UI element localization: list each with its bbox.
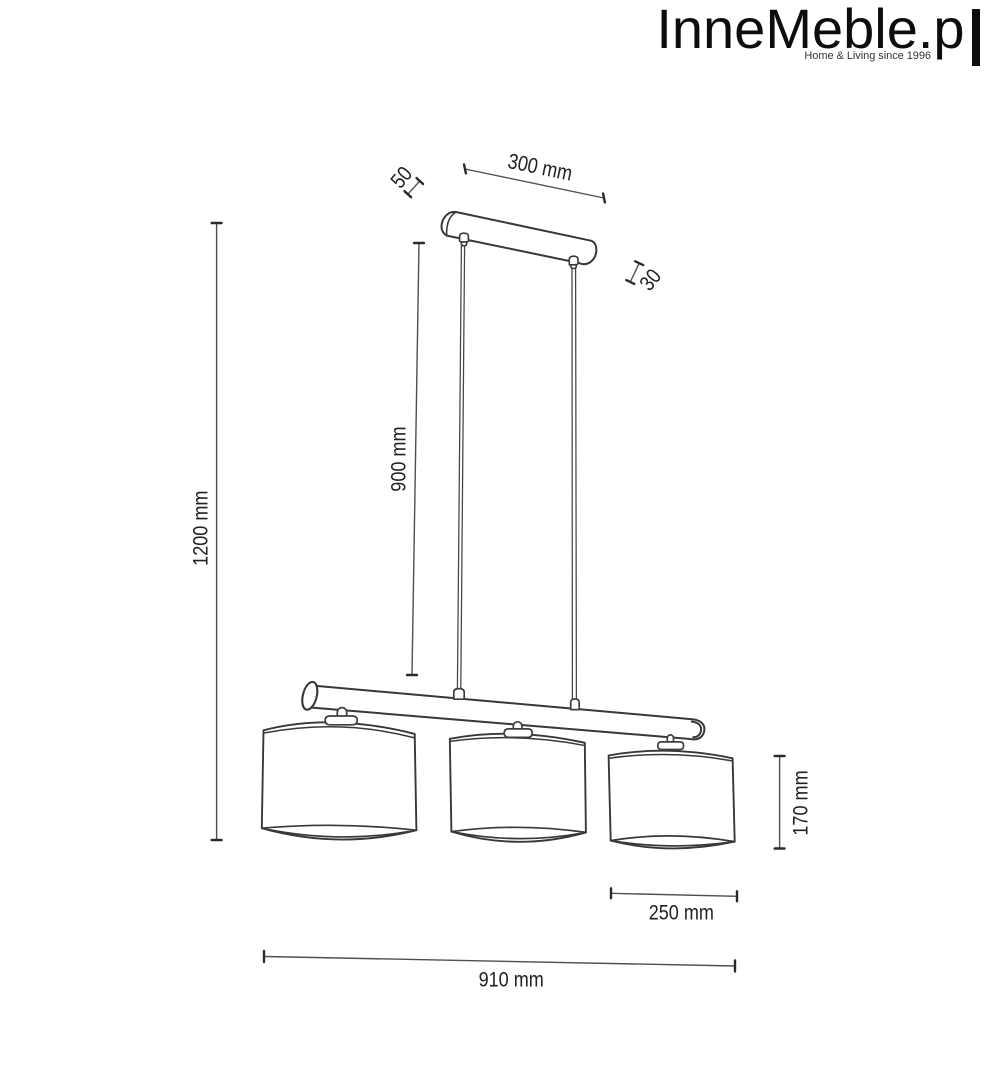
svg-text:30: 30 xyxy=(635,265,666,296)
svg-text:170 mm: 170 mm xyxy=(789,770,813,835)
svg-text:900 mm: 900 mm xyxy=(387,426,411,491)
svg-text:1200 mm: 1200 mm xyxy=(189,491,213,566)
svg-text:250 mm: 250 mm xyxy=(649,901,714,925)
svg-text:300 mm: 300 mm xyxy=(506,150,575,187)
svg-text:910 mm: 910 mm xyxy=(479,968,544,992)
